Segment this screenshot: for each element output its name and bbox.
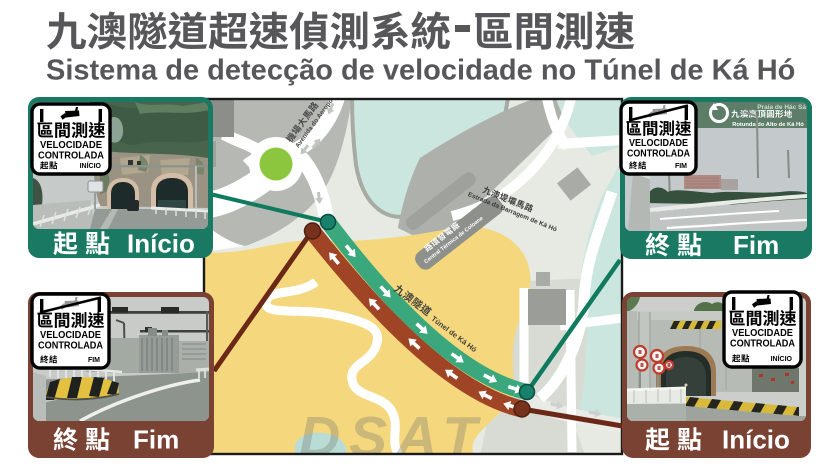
svg-text:INÍCIO: INÍCIO — [80, 161, 102, 170]
svg-text:VELOCIDADE: VELOCIDADE — [629, 138, 688, 149]
svg-text:Rotunda do Alto de Ká Hó: Rotunda do Alto de Ká Hó — [732, 122, 804, 128]
svg-text:FIM: FIM — [675, 163, 687, 170]
svg-text:Início: Início — [127, 229, 195, 259]
svg-text:FIM: FIM — [88, 357, 100, 364]
svg-text:Sistema de detecção de velocid: Sistema de detecção de velocidade no Tún… — [46, 55, 795, 87]
svg-text:VELOCIDADE: VELOCIDADE — [40, 330, 101, 341]
svg-text:Início: Início — [722, 425, 790, 455]
svg-text:CONTROLADA: CONTROLADA — [38, 151, 104, 162]
svg-text:CONTROLADA: CONTROLADA — [38, 341, 103, 352]
svg-text:Fim: Fim — [733, 230, 779, 260]
svg-text:CONTROLADA: CONTROLADA — [730, 339, 795, 350]
svg-text:CONTROLADA: CONTROLADA — [627, 149, 690, 160]
svg-text:DSAT: DSAT — [299, 405, 486, 469]
svg-text:VELOCIDADE: VELOCIDADE — [732, 328, 793, 339]
svg-text:INÍCIO: INÍCIO — [771, 354, 793, 363]
svg-text:Praia de Hác Sá: Praia de Hác Sá — [757, 104, 806, 111]
svg-text:VELOCIDADE: VELOCIDADE — [40, 140, 102, 151]
svg-text:Fim: Fim — [133, 425, 179, 455]
